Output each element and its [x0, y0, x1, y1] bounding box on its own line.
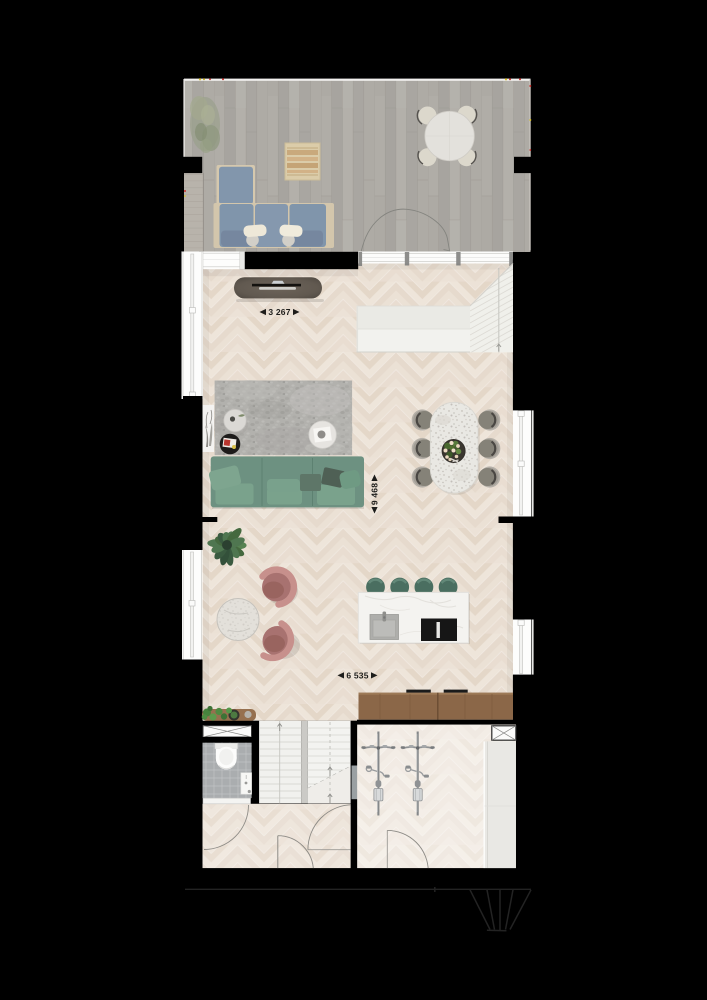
svg-text:6 535: 6 535 [346, 671, 368, 681]
svg-text:3 267: 3 267 [268, 307, 290, 317]
svg-text:9 468: 9 468 [370, 483, 380, 505]
